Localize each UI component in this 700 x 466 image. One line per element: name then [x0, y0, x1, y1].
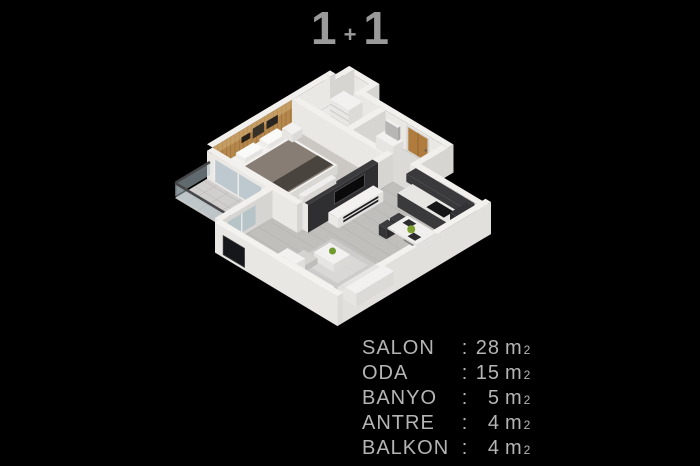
legend-row-salon: SALON:28m2: [362, 336, 531, 361]
colon: :: [458, 386, 472, 411]
room-area: 4: [472, 411, 500, 436]
room-size-legend: SALON:28m2 ODA:15m2 BANYO:5m2 ANTRE:4m2 …: [362, 336, 531, 461]
room-name: ANTRE: [362, 411, 458, 436]
colon: :: [458, 336, 472, 361]
room-name: ODA: [362, 361, 458, 386]
room-area: 5: [472, 386, 500, 411]
room-area: 28: [472, 336, 500, 361]
room-name: BALKON: [362, 436, 458, 461]
colon: :: [458, 436, 472, 461]
legend-row-balkon: BALKON:4m2: [362, 436, 531, 461]
unit: m: [505, 336, 523, 361]
colon: :: [458, 411, 472, 436]
unit: m: [505, 361, 523, 386]
room-name: SALON: [362, 336, 458, 361]
page: 1 + 1 SALON:28m2 ODA:15m2 BANYO:5m2 ANTR…: [0, 0, 700, 466]
floorplan-3d-render: [0, 0, 700, 466]
legend-row-antre: ANTRE:4m2: [362, 411, 531, 436]
unit: m: [505, 436, 523, 461]
unit: m: [505, 386, 523, 411]
room-name: BANYO: [362, 386, 458, 411]
legend-row-banyo: BANYO:5m2: [362, 386, 531, 411]
room-area: 15: [472, 361, 500, 386]
legend-row-oda: ODA:15m2: [362, 361, 531, 386]
room-area: 4: [472, 436, 500, 461]
unit: m: [505, 411, 523, 436]
colon: :: [458, 361, 472, 386]
